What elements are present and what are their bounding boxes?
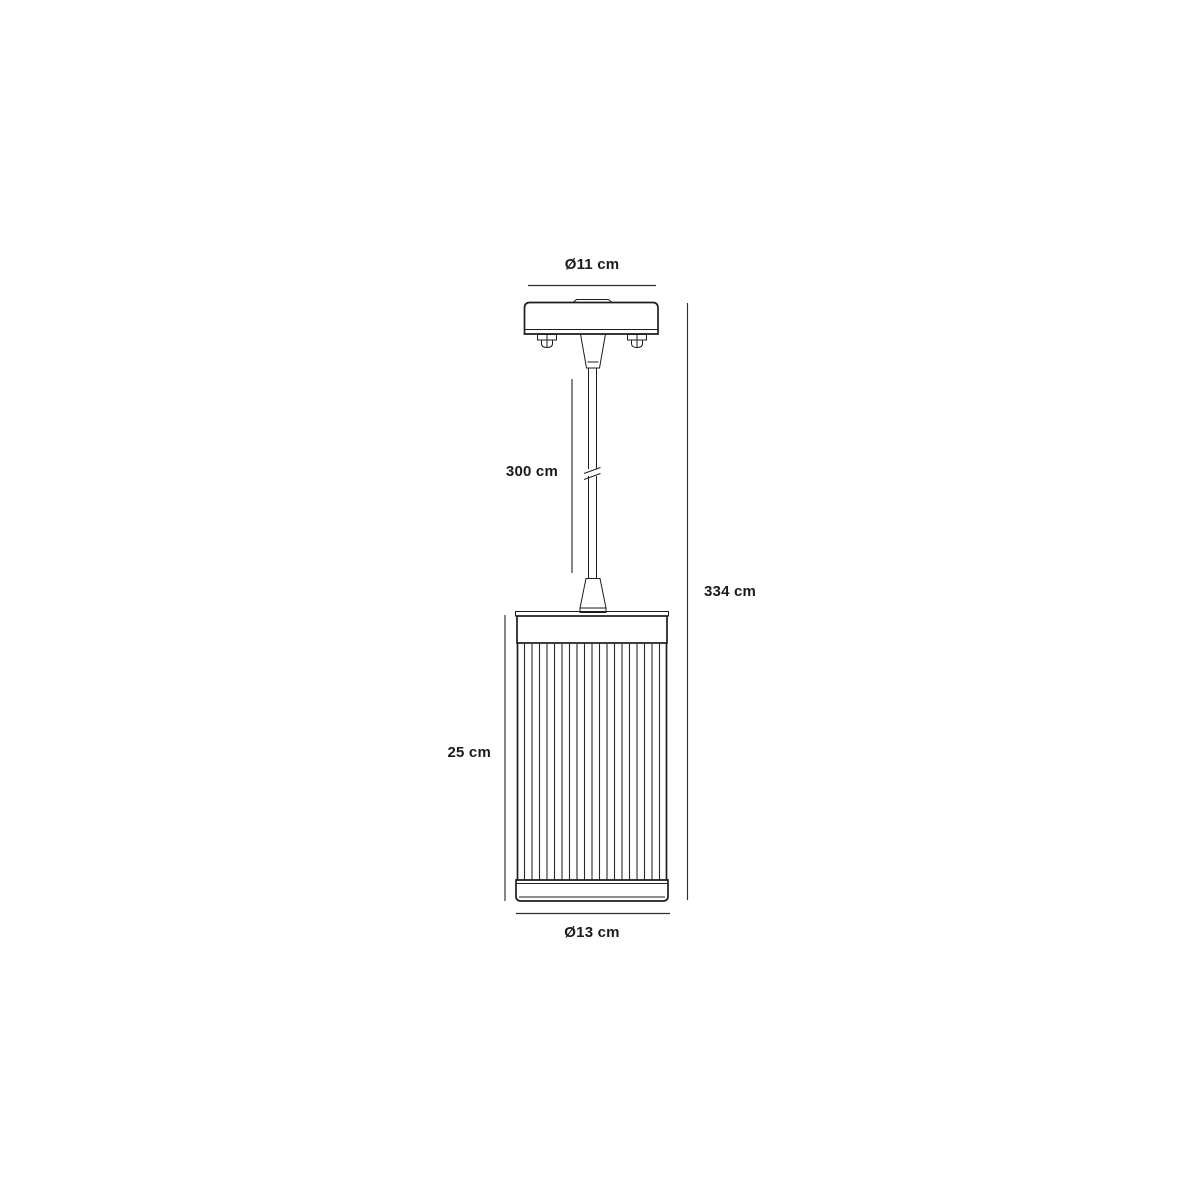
label-shade-height: 25 cm bbox=[350, 744, 491, 762]
label-total-height: 334 cm bbox=[704, 583, 756, 601]
lamp-line-drawing bbox=[0, 0, 1200, 1200]
shade-top-band bbox=[517, 616, 667, 643]
suspension-cord bbox=[580, 368, 606, 613]
label-canopy-diameter: Ø11 cm bbox=[492, 256, 692, 274]
shade-ribs bbox=[518, 643, 667, 880]
label-shade-diameter: Ø13 cm bbox=[492, 924, 692, 942]
cord-break-mark bbox=[584, 468, 601, 480]
shade bbox=[516, 612, 669, 902]
label-cord-length: 300 cm bbox=[400, 463, 558, 481]
canopy-screw-left bbox=[538, 335, 557, 348]
canopy bbox=[525, 300, 659, 369]
diagram-canvas: Ø11 cm 300 cm 334 cm 25 cm Ø13 cm bbox=[0, 0, 1200, 1200]
canopy-cone bbox=[581, 334, 606, 368]
shade-socket-cone bbox=[580, 579, 606, 609]
canopy-screw-right bbox=[628, 335, 647, 348]
